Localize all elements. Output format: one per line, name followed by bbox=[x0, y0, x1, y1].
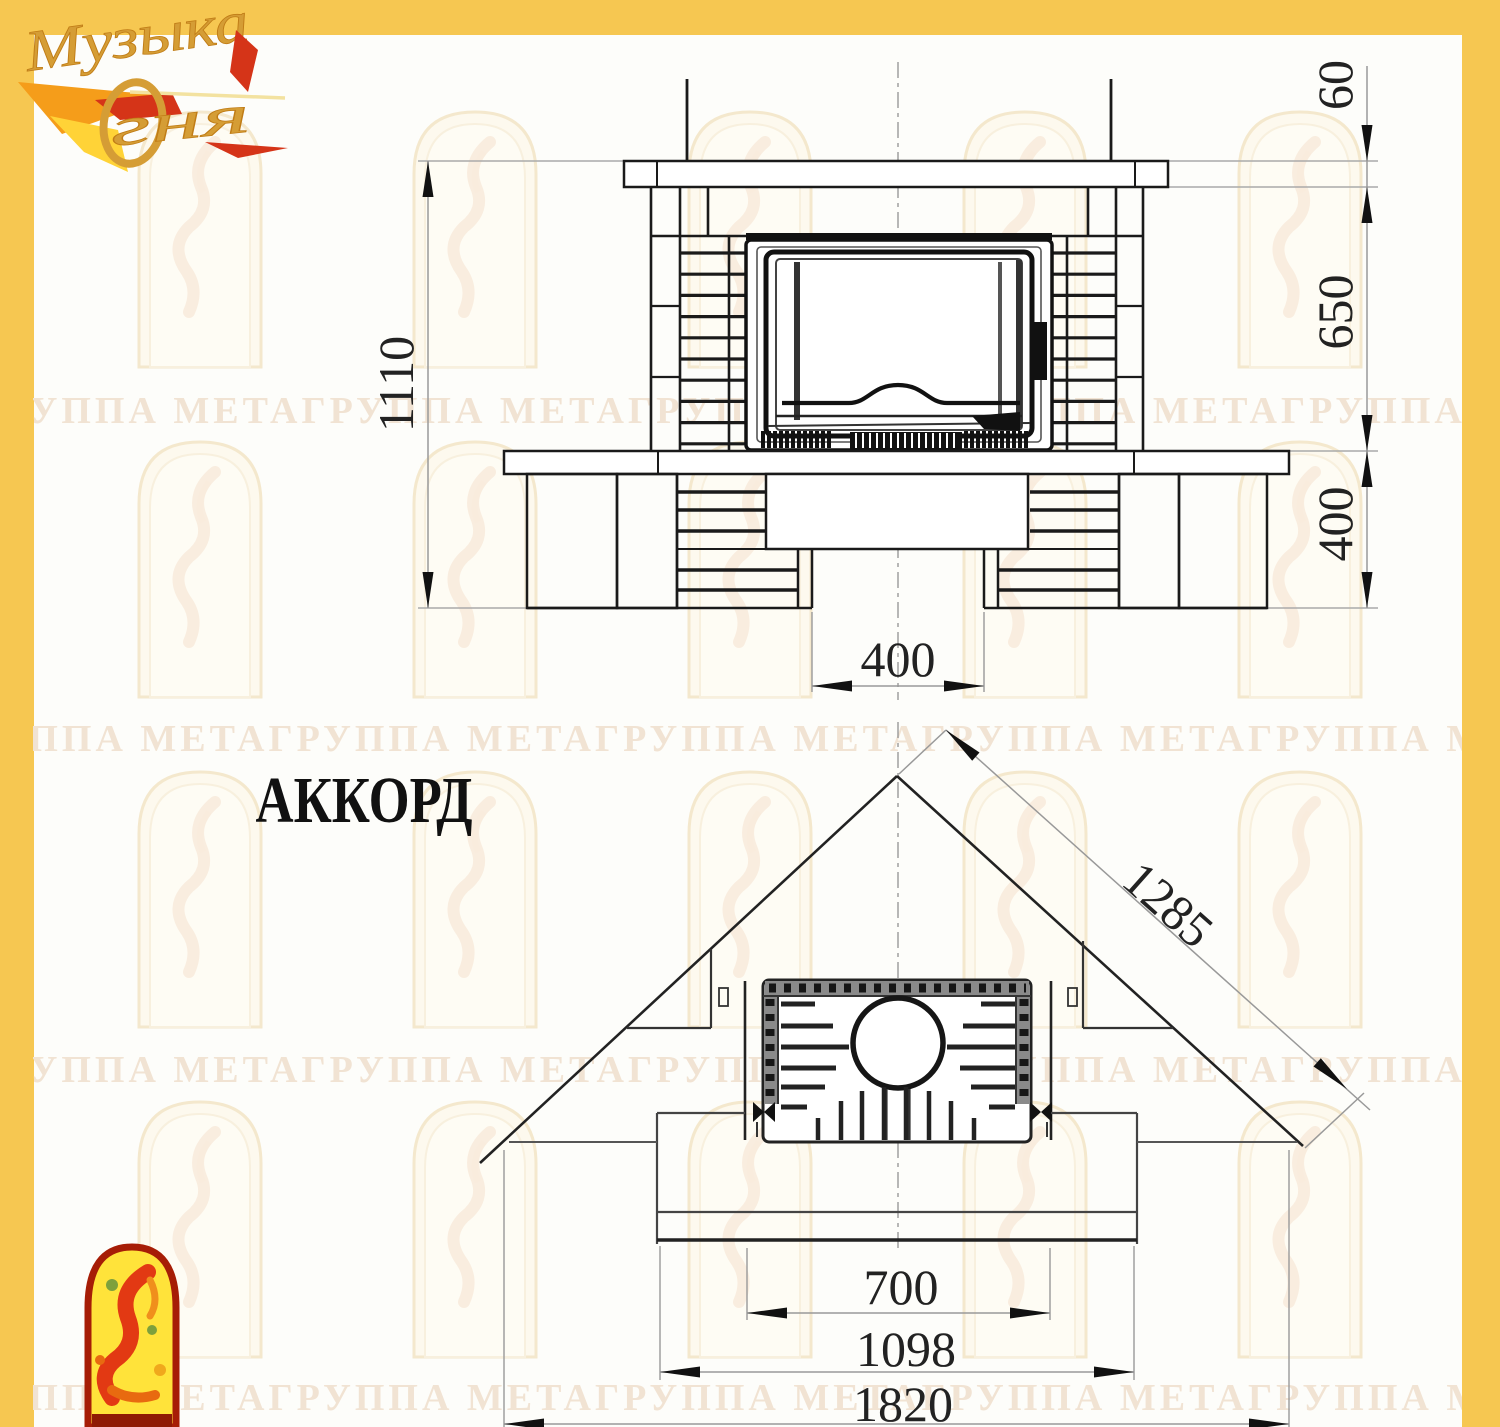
svg-text:ГРУППА МЕТАГРУППА МЕТАГРУППА М: ГРУППА МЕТАГРУППА МЕТАГРУППА МЕТАГРУППА … bbox=[0, 1377, 1500, 1419]
svg-text:1098: 1098 bbox=[856, 1321, 956, 1377]
svg-text:700: 700 bbox=[864, 1259, 939, 1315]
svg-text:Музыка: Музыка bbox=[20, 0, 253, 84]
svg-text:ГРУППА МЕТАГРУППА МЕТАГРУППА М: ГРУППА МЕТАГРУППА МЕТАГРУППА МЕТАГРУППА … bbox=[0, 1049, 1500, 1091]
svg-text:400: 400 bbox=[861, 631, 936, 687]
svg-text:1820: 1820 bbox=[853, 1376, 953, 1427]
svg-text:400: 400 bbox=[1307, 487, 1363, 562]
svg-text:АККОРД: АККОРД bbox=[256, 764, 473, 837]
svg-text:1285: 1285 bbox=[1112, 850, 1224, 958]
svg-text:650: 650 bbox=[1307, 275, 1363, 350]
svg-text:60: 60 bbox=[1307, 60, 1363, 110]
svg-text:1110: 1110 bbox=[368, 336, 424, 432]
svg-text:ГРУППА МЕТАГРУППА МЕТАГРУППА М: ГРУППА МЕТАГРУППА МЕТАГРУППА МЕТАГРУППА … bbox=[0, 718, 1500, 760]
